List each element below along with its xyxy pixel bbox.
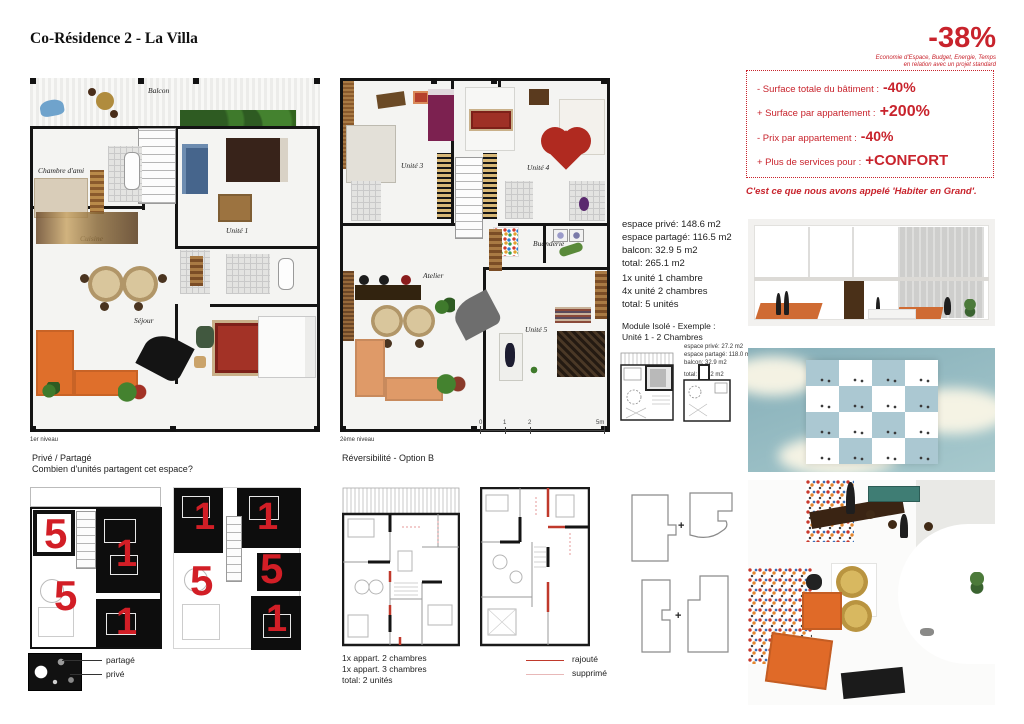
summary-line: total: 5 unités [622,298,708,311]
wall-marker [471,426,477,432]
plus-sign: + [675,610,681,622]
legend-thumbnail [28,653,82,691]
chair [80,274,89,283]
bed-purple [428,89,454,141]
stairs [226,516,242,582]
person-silhouette [944,297,951,315]
orange-floor [755,303,822,319]
balcony-stool [110,110,118,118]
sofa-tan [355,339,385,397]
legend-rajoute-label: rajouté [572,654,598,664]
stool [866,510,875,519]
render-sky-collage [748,348,995,472]
module-combination-2: + [632,572,737,657]
units-summary: 1x unité 1 chambre 4x unité 2 chambres t… [622,272,708,311]
legend-connector [62,660,102,661]
chair [100,302,109,311]
scale-tick [530,427,531,434]
wall [175,246,320,249]
bathtub [124,152,140,190]
stat-caption-line2: en relation avec un projet standard [904,62,996,68]
summary-line: 4x unité 2 chambres [622,285,708,298]
floorplan-level1: Balcon Chambre d'ami Cuisine Séjour [30,78,320,432]
benefit-value: -40% [883,79,916,95]
dark-wardrobe [844,281,864,319]
plant [437,373,467,395]
person [401,275,411,285]
legend-prive-label: privé [106,669,124,679]
module-combination-1: + [628,487,740,567]
share-count: 5 [54,575,77,617]
benefit-label: + Surface par appartement : [757,108,876,119]
room-label-atelier: Atelier [423,271,443,280]
share-count: 5 [190,560,213,602]
share-count: 5 [44,513,67,555]
stool [888,520,897,529]
person [359,275,369,285]
plant [38,382,60,400]
dining-table [88,266,124,302]
benefit-label: - Prix par appartement : [757,133,857,144]
shared-diagram-level1: 5 1 5 1 [30,487,162,649]
partition [808,227,810,277]
room-label-chambre: Chambre d'ami [38,166,84,175]
floor-slab [754,277,989,281]
plant [529,365,539,375]
balcony-stool [88,88,96,96]
share-count: 1 [116,603,137,641]
sofa-tan [385,377,443,401]
chair [158,274,167,283]
plant [964,299,976,317]
room-label-unite1: Unité 1 [226,226,248,235]
module-detail: espace privé: 27.2 m2 [684,343,753,351]
plan2-caption: 2ème niveau [340,437,374,443]
side-table [194,356,206,368]
module-outline-pair2 [632,572,737,657]
bathroom [505,181,533,219]
figure-purple [579,197,589,211]
scale-label: 1 [503,420,506,426]
rev-line: 1x appart. 2 chambres [342,653,427,664]
floorplan-level2: Unité 3 Unité 4 Buanderie Atelie [340,78,610,432]
wardrobe [343,271,354,341]
desk [376,91,406,109]
benefit-row: - Prix par appartement : -40% [757,128,983,144]
person-silhouette [784,291,789,315]
bathroom [351,181,381,221]
stat-caption-line1: Economie d'Espace, Budget, Energie, Temp… [876,55,996,61]
desk [218,194,252,222]
checkerboard-collage [806,360,938,464]
bathtub [278,258,294,290]
dining-table [371,305,403,337]
scale-line [480,430,605,431]
stairs [455,157,483,239]
partition [852,227,854,277]
scale-label: 0 [479,420,482,426]
module-detail: espace partagé: 118.0 m2 [684,351,753,359]
benefit-value: +200% [880,103,930,121]
wall-marker [170,426,176,432]
wall-marker [314,78,320,84]
rev-line: total: 2 unités [342,675,427,686]
wall-marker [431,78,437,84]
bathroom [226,254,270,294]
scale-label: 2 [528,420,531,426]
shared-diagram-level2: 1 1 5 5 1 [173,487,300,649]
area-summary: espace privé: 148.6 m2 espace partagé: 1… [622,218,732,270]
wardrobe [90,170,104,214]
wall-marker [340,426,346,432]
dining-table [403,305,435,337]
wall-marker [601,78,607,84]
wall-marker [30,78,36,84]
bed-dark [557,331,605,377]
presentation-board: Co-Résidence 2 - La Villa -38% Economie … [0,0,1024,724]
work-table [355,285,421,300]
scale-tick [480,426,481,434]
wardrobe [489,229,502,271]
summary-line: balcon: 32.9 5 m2 [622,244,732,257]
kitchen-counter [36,212,138,244]
wall-marker [193,78,199,84]
grand-piano-gray [449,289,503,341]
diagram-balcony [30,487,161,507]
scale-tick [505,427,506,434]
bed-gray [346,125,396,183]
black-chair [806,574,822,590]
page-title: Co-Résidence 2 - La Villa [30,30,198,48]
balcony-table [96,92,114,110]
scale-label: 5m [596,420,604,426]
share-count: 1 [194,498,215,536]
room-label-balcon: Balcon [148,86,169,95]
tagline: C'est ce que nous avons appelé 'Habiter … [746,186,994,198]
summary-line: total: 265.1 m2 [622,257,732,270]
wall-marker [30,426,36,432]
plant [433,297,455,317]
wardrobe [595,271,607,319]
plant [118,382,148,402]
benefit-row: + Plus de services pour : +CONFORT [757,152,983,169]
prive-partage-title: Privé / Partagé [32,453,92,463]
rug-striped [555,307,591,323]
keyboard-strip [483,153,497,219]
bed-white [258,316,316,378]
person-silhouette [776,293,781,315]
share-count: 1 [116,535,137,573]
legend-partage-label: partagé [106,655,135,665]
reversibilite-plan-a [342,487,460,647]
wall [343,223,455,226]
render-interior-aerial [748,480,995,705]
furniture-outline [182,604,220,640]
module-title1: Module Isolé - Exemple : [622,321,716,332]
sofa-orange [802,592,842,630]
rug-heart-part [563,127,591,155]
armchair-green [196,326,214,348]
scale-bar: 0 1 2 5m [480,420,605,436]
render-section-model [748,219,995,326]
benefit-row: - Surface totale du bâtiment : -40% [757,79,983,95]
person [379,275,389,285]
reversibilite-summary: 1x appart. 2 chambres 1x appart. 3 chamb… [342,653,427,686]
bed-dark [226,138,288,182]
reversibilite-title: Réversibilité - Option B [342,453,434,463]
wall-marker [138,78,144,84]
plant [970,572,984,594]
legend-rajoute-line [526,660,564,661]
counter [868,309,916,319]
bed-blue [182,144,208,194]
person-silhouette [900,514,908,538]
plus-sign: + [678,520,684,532]
legend-supprime-line [526,674,564,675]
kitchen-table-teal [868,486,920,502]
desk [529,89,549,105]
share-count: 1 [257,498,278,536]
summary-line: 1x unité 1 chambre [622,272,708,285]
stairs [76,511,96,569]
share-count: 5 [260,548,283,590]
stool [924,522,933,531]
summary-line: espace partagé: 116.5 m2 [622,231,732,244]
summary-line: espace privé: 148.6 m2 [622,218,732,231]
benefit-label: + Plus de services pour : [757,157,861,168]
room-label-unite3: Unité 3 [401,161,423,170]
rev-line: 1x appart. 3 chambres [342,664,427,675]
benefit-row: + Surface par appartement : +200% [757,103,983,121]
module-plan-thumb1 [620,352,675,422]
dining-table [122,266,158,302]
share-count: 1 [266,600,287,638]
rug-heart [539,123,593,173]
wall-marker [314,426,320,432]
scale-tick [604,426,605,434]
sofa-orange [765,632,833,690]
benefits-box: - Surface totale du bâtiment : -40% + Su… [746,70,994,178]
washing-machine [569,229,584,242]
reversibilite-plan-b [480,487,590,647]
figure [505,343,515,367]
curved-wall [898,524,995,664]
legend-connector [70,674,102,675]
module-plan-thumb2 [683,364,731,422]
wall [210,304,320,307]
plan1-caption: 1er niveau [30,437,58,443]
stairs [138,128,176,204]
stat-headline: -38% [928,22,996,55]
module-title2: Unité 1 - 2 Chambres [622,332,703,342]
round-table [840,600,872,632]
benefit-value: -40% [861,128,894,144]
rug-small [413,91,429,104]
keyboard-strip [437,153,451,219]
benefit-value: +CONFORT [865,152,948,169]
room-label-unite5: Unité 5 [525,325,547,334]
person-silhouette [846,482,855,514]
benefit-label: - Surface totale du bâtiment : [757,84,879,95]
shelf [190,256,203,286]
washing-machine [553,229,568,242]
small-figure [920,628,934,636]
wall-marker [491,78,497,84]
chair [134,302,143,311]
prive-partage-subtitle: Combien d'unités partagent cet espace? [32,464,193,474]
dark-panel [841,667,905,699]
room-label-sejour: Séjour [134,316,154,325]
legend-supprime-label: supprimé [572,668,607,678]
rug-persian [469,109,513,131]
chair [415,339,424,348]
wall [498,223,607,226]
